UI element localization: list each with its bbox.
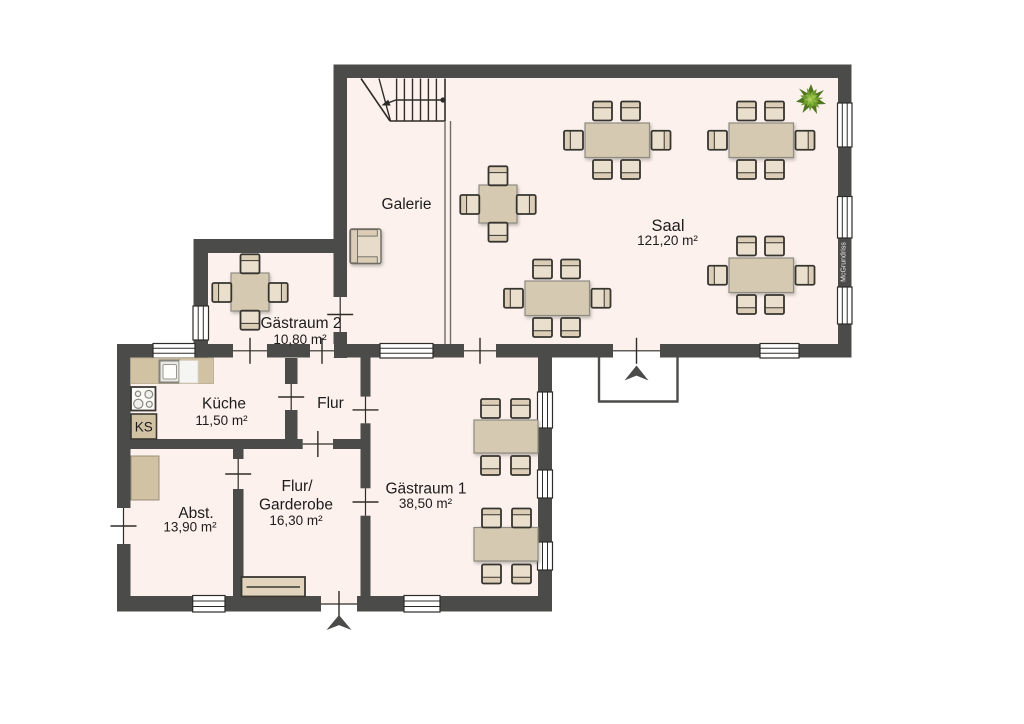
svg-text:KS: KS	[135, 420, 153, 435]
svg-text:10,80 m²: 10,80 m²	[273, 332, 327, 347]
svg-text:Gästraum 2: Gästraum 2	[261, 315, 342, 332]
svg-text:Galerie: Galerie	[382, 196, 432, 213]
svg-text:Garderobe: Garderobe	[259, 497, 333, 514]
svg-text:Flur/: Flur/	[282, 478, 314, 495]
svg-text:121,20 m²: 121,20 m²	[637, 233, 698, 248]
svg-text:Gästraum 1: Gästraum 1	[386, 481, 467, 498]
svg-text:13,90 m²: 13,90 m²	[163, 520, 217, 535]
svg-text:Küche: Küche	[202, 396, 246, 413]
svg-text:38,50 m²: 38,50 m²	[399, 496, 453, 511]
svg-text:16,30 m²: 16,30 m²	[269, 513, 323, 528]
svg-text:McGrundriss: McGrundriss	[841, 242, 848, 282]
svg-text:11,50 m²: 11,50 m²	[195, 413, 248, 428]
svg-text:Flur: Flur	[317, 395, 344, 412]
